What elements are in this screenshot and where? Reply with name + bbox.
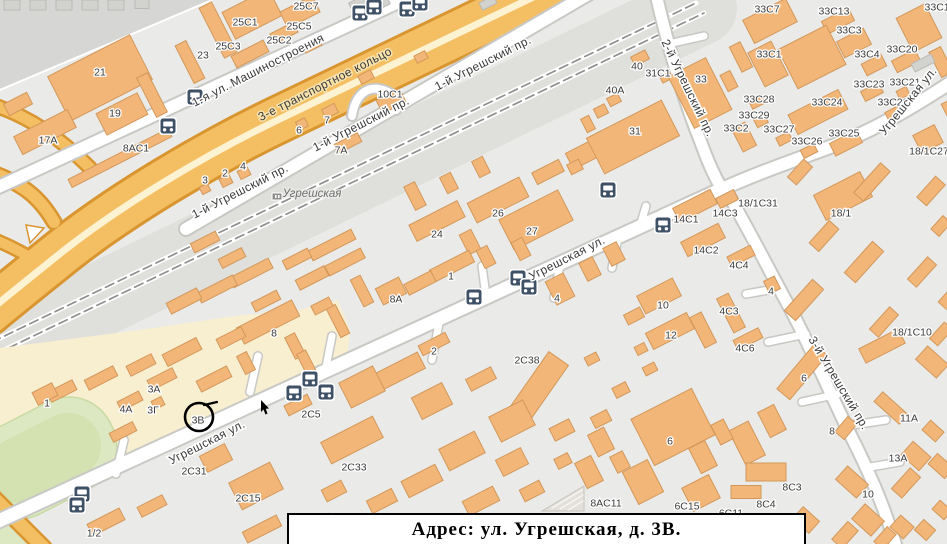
building-label: 13A	[889, 453, 908, 465]
building-label: 40	[631, 61, 643, 73]
building-label: 6	[296, 125, 302, 137]
building-label: 33C14	[925, 2, 947, 14]
building-label: 8C4	[756, 499, 775, 511]
building-label: 18/1C27	[909, 146, 947, 158]
building	[82, 0, 98, 10]
address-caption: Адрес: ул. Угрешская, д. 3В.	[287, 513, 806, 544]
bus-stop-icon[interactable]	[159, 117, 177, 135]
building-label: 19	[109, 108, 121, 120]
building-label: 8	[829, 426, 835, 438]
map-graphics: 211917A8AC12325C325C125C225C525C73247A76…	[0, 0, 947, 544]
building-label: 27	[526, 226, 538, 238]
building	[108, 0, 124, 10]
bus-stop-icon[interactable]	[654, 216, 672, 234]
building-label: 21	[94, 67, 106, 79]
building-label: 25C2	[266, 35, 291, 47]
building-label: 2C38	[514, 355, 539, 367]
building-label: 14C2	[693, 245, 718, 257]
building-label: 4C4	[729, 260, 748, 272]
building-label: 6	[667, 436, 673, 448]
building-label: 31C1	[645, 68, 670, 80]
building-label: 8A	[390, 294, 403, 306]
building-label: 18/1	[831, 208, 852, 220]
building-label: 2	[222, 168, 228, 180]
building-label: 6	[801, 373, 807, 385]
building-label: 4	[554, 293, 560, 305]
building-label: 8	[271, 328, 277, 340]
building	[56, 0, 72, 10]
building-label: 31	[629, 126, 641, 138]
building-label: 1	[448, 271, 454, 283]
building-label: 33	[695, 74, 707, 86]
building-label: 17A	[39, 135, 58, 147]
building	[731, 486, 761, 499]
building-label: 33C24	[812, 97, 843, 109]
bus-stop-icon[interactable]	[301, 370, 319, 388]
bus-stop-icon[interactable]	[365, 0, 383, 16]
building-label: 4A	[120, 404, 133, 416]
building-label: 25C3	[215, 41, 240, 53]
building-label: 8AC1	[123, 143, 149, 155]
building-label: 33C20	[887, 44, 918, 56]
building-label: 18/1C10	[892, 327, 932, 339]
building-label: 2	[431, 346, 437, 358]
building-label: 3В	[192, 415, 205, 427]
building-label: 25C7	[293, 1, 318, 13]
building-label: 6C15	[674, 501, 699, 513]
station-label: Угрешская	[282, 188, 342, 200]
building-label: 33C28	[744, 94, 775, 106]
building	[135, 0, 149, 9]
building-label: 7A	[335, 145, 348, 157]
building-label: 23	[197, 50, 209, 62]
building	[4, 0, 20, 10]
building-label: 1	[44, 398, 50, 410]
building-label: 33C7	[754, 4, 779, 16]
building-label: 33C3	[836, 25, 861, 37]
building-label: 26	[492, 208, 504, 220]
building-label: 3A	[148, 384, 161, 396]
building-label: 7	[324, 115, 330, 127]
bus-stop-icon[interactable]	[68, 496, 86, 514]
building	[30, 0, 46, 10]
building-label: 10	[862, 489, 874, 501]
bus-stop-icon[interactable]	[599, 181, 617, 199]
bus-stop-icon[interactable]	[465, 288, 483, 306]
bus-stop-icon[interactable]	[285, 384, 303, 402]
building-label: 33C4	[854, 49, 879, 61]
map-canvas[interactable]: 211917A8AC12325C325C125C225C525C73247A76…	[0, 0, 947, 544]
building-label: 33C26	[792, 136, 823, 148]
building-label: 18/1C31	[738, 198, 778, 210]
building-label: 33C29	[739, 110, 770, 122]
building-label: 33C23	[854, 79, 885, 91]
building-label: 3	[202, 175, 208, 187]
building-label: 4C3	[719, 306, 738, 318]
bus-stop-icon[interactable]	[317, 383, 335, 401]
bus-stop-icon[interactable]	[411, 0, 429, 12]
building-label: 33C1	[756, 49, 781, 61]
building-label: 8C3	[782, 482, 801, 494]
building-label: 33C25	[829, 128, 860, 140]
building-label: 10	[657, 300, 669, 312]
building-label: 4	[240, 161, 246, 173]
building-label: 33C27	[764, 124, 795, 136]
building-label: 12	[665, 330, 677, 342]
building-label: 2C33	[341, 462, 366, 474]
building-label: 2C5	[301, 409, 320, 421]
building-label: 33C13	[819, 6, 850, 18]
building-label: 2C31	[181, 466, 206, 478]
railway-station-icon[interactable]	[272, 193, 282, 200]
building-label: 24	[431, 229, 443, 241]
building-label: 40A	[606, 85, 625, 97]
building-label: 11A	[900, 413, 918, 425]
building-label: 1/2	[87, 528, 102, 540]
building-label: 14C1	[673, 214, 698, 226]
building-label: 25C1	[232, 17, 257, 29]
building-label: 33C2	[723, 123, 748, 135]
building-label: 14C3	[712, 208, 737, 220]
building-label: 4C6	[735, 343, 754, 355]
building-label: 8AC11	[590, 498, 621, 510]
building-label: 2C15	[235, 493, 260, 505]
building	[746, 463, 786, 481]
building-label: 4	[768, 286, 774, 298]
building-label: 25C5	[286, 21, 311, 33]
building-label: 3Г	[147, 405, 159, 417]
